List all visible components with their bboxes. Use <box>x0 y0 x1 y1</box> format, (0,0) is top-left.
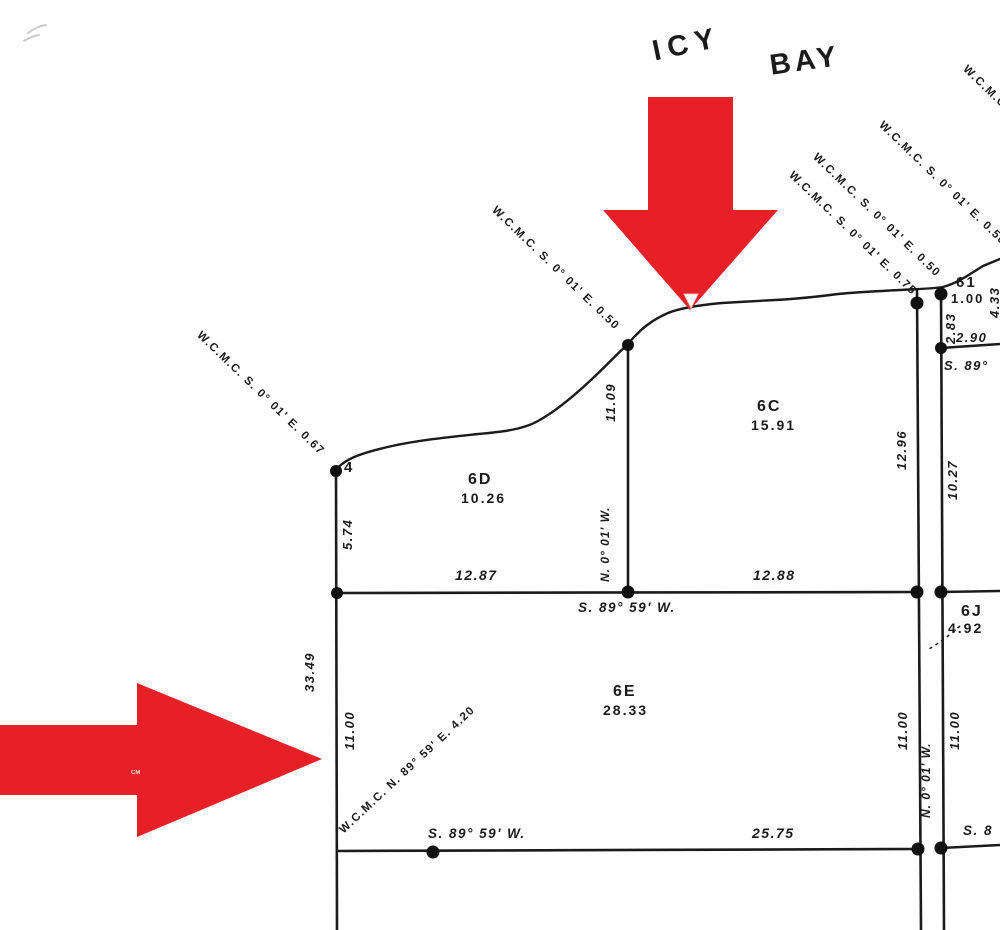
south-horizontal-line-east <box>941 845 1000 848</box>
corner-dot-meander-center <box>622 339 634 351</box>
corner-dot-mid-east1 <box>911 586 924 599</box>
distance-11-00-east1: 11.00 <box>896 711 909 750</box>
lot-6d-id: 6D <box>468 472 492 488</box>
distance-11-00-west: 11.00 <box>343 711 356 750</box>
bearing-n001w-center: N. 0° 01' W. <box>599 507 611 582</box>
lot-6e-area: 28.33 <box>603 703 648 717</box>
lot-6e-id: 6E <box>613 684 637 700</box>
south-horizontal-line-west <box>337 849 917 851</box>
corner-number-4: 4 <box>344 460 352 475</box>
corner-dot-mid-east2 <box>935 586 948 599</box>
distance-2-83: 2.83 <box>944 313 957 344</box>
distance-12-96: 12.96 <box>895 430 908 470</box>
west-boundary-line <box>336 471 337 930</box>
distance-12-87: 12.87 <box>455 568 498 582</box>
corner-monuments <box>330 288 948 859</box>
right-arrow-annotation <box>0 683 322 837</box>
corner-dot-south <box>427 846 440 859</box>
east-boundary-line-1 <box>917 290 921 930</box>
corner-dot-east2-top <box>935 288 948 301</box>
bearing-s8-cut: S. 8 <box>963 824 993 838</box>
corner-dot-south-east2 <box>935 842 948 855</box>
distance-2-90: 2.90 <box>956 331 987 344</box>
bearing-s89-east: S. 89° <box>944 359 989 372</box>
lot-6c-area: 15.91 <box>751 418 796 432</box>
corner-dot-mid-west <box>331 587 343 599</box>
distance-5-74: 5.74 <box>341 519 354 550</box>
bearing-s8959w-mid: S. 89° 59' W. <box>578 601 676 615</box>
distance-10-27: 10.27 <box>946 460 959 500</box>
lot-6j-area: 4.92 <box>948 621 983 635</box>
east-boundary-line-2 <box>941 288 944 930</box>
lot-61-area: 1.00 <box>951 292 984 305</box>
mid-horizontal-line-east <box>941 591 1000 592</box>
down-arrow-annotation <box>603 97 778 310</box>
distance-4-33: 4.33 <box>988 287 1000 318</box>
distance-25-75: 25.75 <box>752 826 795 840</box>
distance-11-00-east2: 11.00 <box>948 711 961 750</box>
distance-11-09: 11.09 <box>604 383 617 422</box>
lot-61-id: 61 <box>956 275 977 290</box>
lot-6c-id: 6C <box>757 399 781 415</box>
distance-33-49: 33.49 <box>303 652 316 692</box>
corner-dot-mid-center <box>622 586 635 599</box>
survey-plat-map: ICY BAY W.C.M.C. S. 0° 01' E. 0.67 W.C.M… <box>0 0 1000 930</box>
corner-dot-4 <box>330 465 342 477</box>
lot-6j-id: 6J <box>961 604 983 620</box>
bearing-n001w-east: N. 0° 01' W. <box>920 743 932 818</box>
corner-dot-south-east1 <box>912 843 925 856</box>
corner-dot-east1-top <box>911 297 924 310</box>
lot-6d-area: 10.26 <box>461 491 506 505</box>
distance-12-88: 12.88 <box>753 568 796 582</box>
bearing-s8959w-south: S. 89° 59' W. <box>428 827 526 841</box>
arrow-watermark: CM <box>131 770 140 776</box>
plat-linework <box>0 0 1000 930</box>
scan-smudge <box>24 25 46 41</box>
